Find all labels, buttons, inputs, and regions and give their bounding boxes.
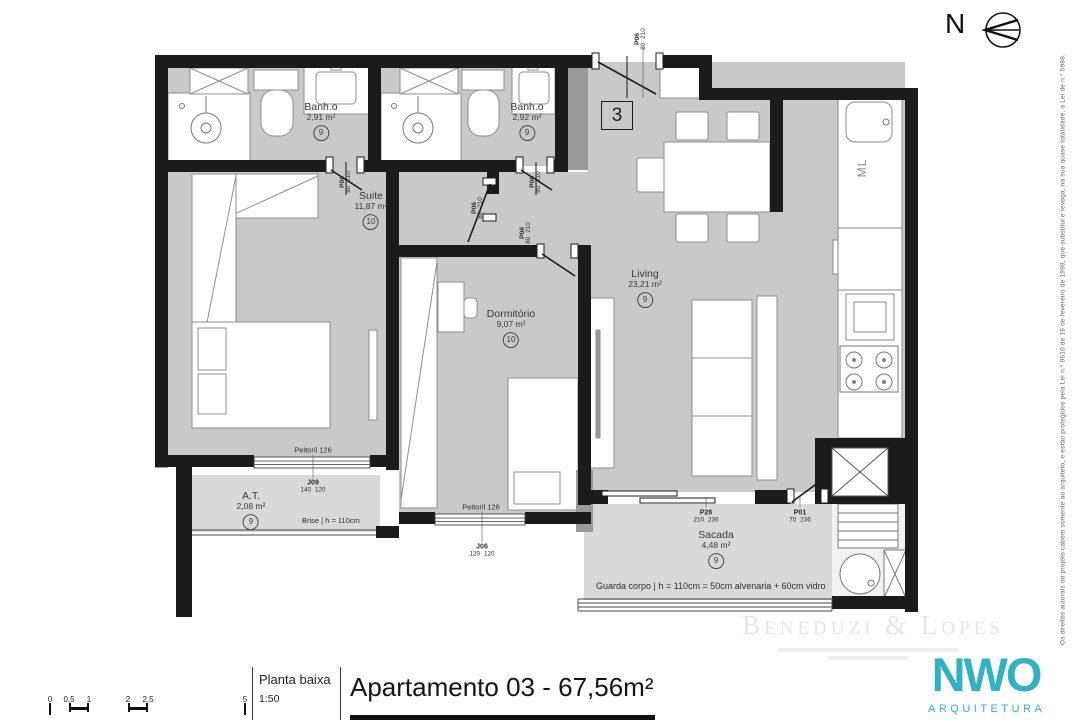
door-label-banho1: P06 80210 xyxy=(339,169,353,195)
dishwasher xyxy=(838,228,902,290)
studio-logo-subtitle: ARQUITETURA xyxy=(928,703,1044,715)
window-j06 xyxy=(435,514,525,525)
toilet-icon xyxy=(254,70,298,90)
north-label: N xyxy=(945,8,965,40)
door-label-banho2: P06 80210 xyxy=(529,169,543,195)
guarda-corpo-note: Guarda corpo | h = 110cm = 50cm alvenari… xyxy=(596,581,826,591)
shelf-striped-box xyxy=(838,504,898,548)
window-j09 xyxy=(254,457,370,468)
titleblock-divider xyxy=(252,667,253,720)
door-label-dormitorio: P06 80210 xyxy=(519,220,533,246)
toilet-icon xyxy=(462,70,504,90)
room-label-banho2: Banh.o 2,92 m² 9 xyxy=(510,101,543,141)
finish-code-circle: 10 xyxy=(503,332,519,348)
door-label-servico: P01 70236 xyxy=(787,510,813,525)
finish-code-circle: 9 xyxy=(243,514,259,530)
north-arrow-icon xyxy=(985,13,1020,47)
laundry-tank-icon xyxy=(840,554,880,594)
studio-logo-word: NWO xyxy=(928,650,1044,700)
pillow xyxy=(198,374,226,414)
ml-label: ML xyxy=(855,159,869,178)
studio-logo: NWO ARQUITETURA xyxy=(928,650,1044,715)
floor-plan-sheet: { "north_label": "N", "unit_badge": "3",… xyxy=(0,0,1078,720)
sheet-title: Apartamento 03 - 67,56m² xyxy=(350,672,654,703)
room-label-area-tecnica: A.T. 2,08 m² 9 xyxy=(237,490,266,530)
watermark-logo: Beneduzi & Lopes xyxy=(688,610,1058,641)
desk xyxy=(438,282,464,332)
tv-panel xyxy=(590,298,614,468)
pillow xyxy=(514,472,560,504)
window-label-j09: J09 140120 xyxy=(298,480,327,495)
brise-note: Brise | h = 110cm xyxy=(302,516,360,525)
entry-cabinet xyxy=(660,64,704,98)
pillow xyxy=(198,328,226,370)
finish-code-circle: 9 xyxy=(313,125,329,141)
kitchen-sink-icon xyxy=(846,102,892,142)
door-label-entry: P06 80210 xyxy=(634,26,648,52)
sofa-seat xyxy=(692,300,752,476)
room-label-sacada: Sacada 4,48 m² 9 xyxy=(698,529,734,569)
room-label-suite: Suite 11,87 m² 10 xyxy=(355,190,388,230)
finish-code-circle: 9 xyxy=(637,292,653,308)
kitchen-counter xyxy=(833,93,902,438)
room-label-living: Living 23,21 m² 9 xyxy=(628,268,662,308)
dining-table xyxy=(664,142,770,212)
closet-panel xyxy=(369,330,377,420)
tv xyxy=(596,330,600,438)
dining-chair xyxy=(676,214,708,242)
sill-label-j06: Peitoril 126 xyxy=(462,503,500,512)
shaft-hatch xyxy=(832,448,888,496)
door-label-sacada: P26 210236 xyxy=(691,510,720,525)
dining-chair xyxy=(727,214,759,242)
unit-number-badge: 3 xyxy=(601,101,633,130)
desk-chair xyxy=(464,298,477,318)
window-label-j06: J06 120120 xyxy=(467,544,496,559)
watermark-subtitle-line xyxy=(828,656,908,660)
dining-chair xyxy=(727,112,759,140)
dining-chair xyxy=(637,158,665,192)
sheet-title-underline xyxy=(350,715,655,720)
drawing-type-label: Planta baixa xyxy=(259,672,331,687)
drawing-scale-label: 1:50 xyxy=(259,693,279,705)
sofa-back xyxy=(757,296,777,480)
copyright-text: Os direitos autorais do projeto cabem so… xyxy=(1060,20,1067,680)
titleblock-divider xyxy=(340,667,341,720)
door-label-hall: P06 80210 xyxy=(471,195,485,221)
room-label-banho1: Banh.o 2,91 m² 9 xyxy=(304,101,337,141)
dining-chair xyxy=(676,112,708,140)
room-label-dormitorio: Dormitório 9,07 m² 10 xyxy=(487,308,535,348)
finish-code-circle: 10 xyxy=(363,214,379,230)
finish-code-circle: 9 xyxy=(519,125,535,141)
finish-code-circle: 9 xyxy=(708,553,724,569)
sill-label-j09: Peitoril 126 xyxy=(294,446,332,455)
